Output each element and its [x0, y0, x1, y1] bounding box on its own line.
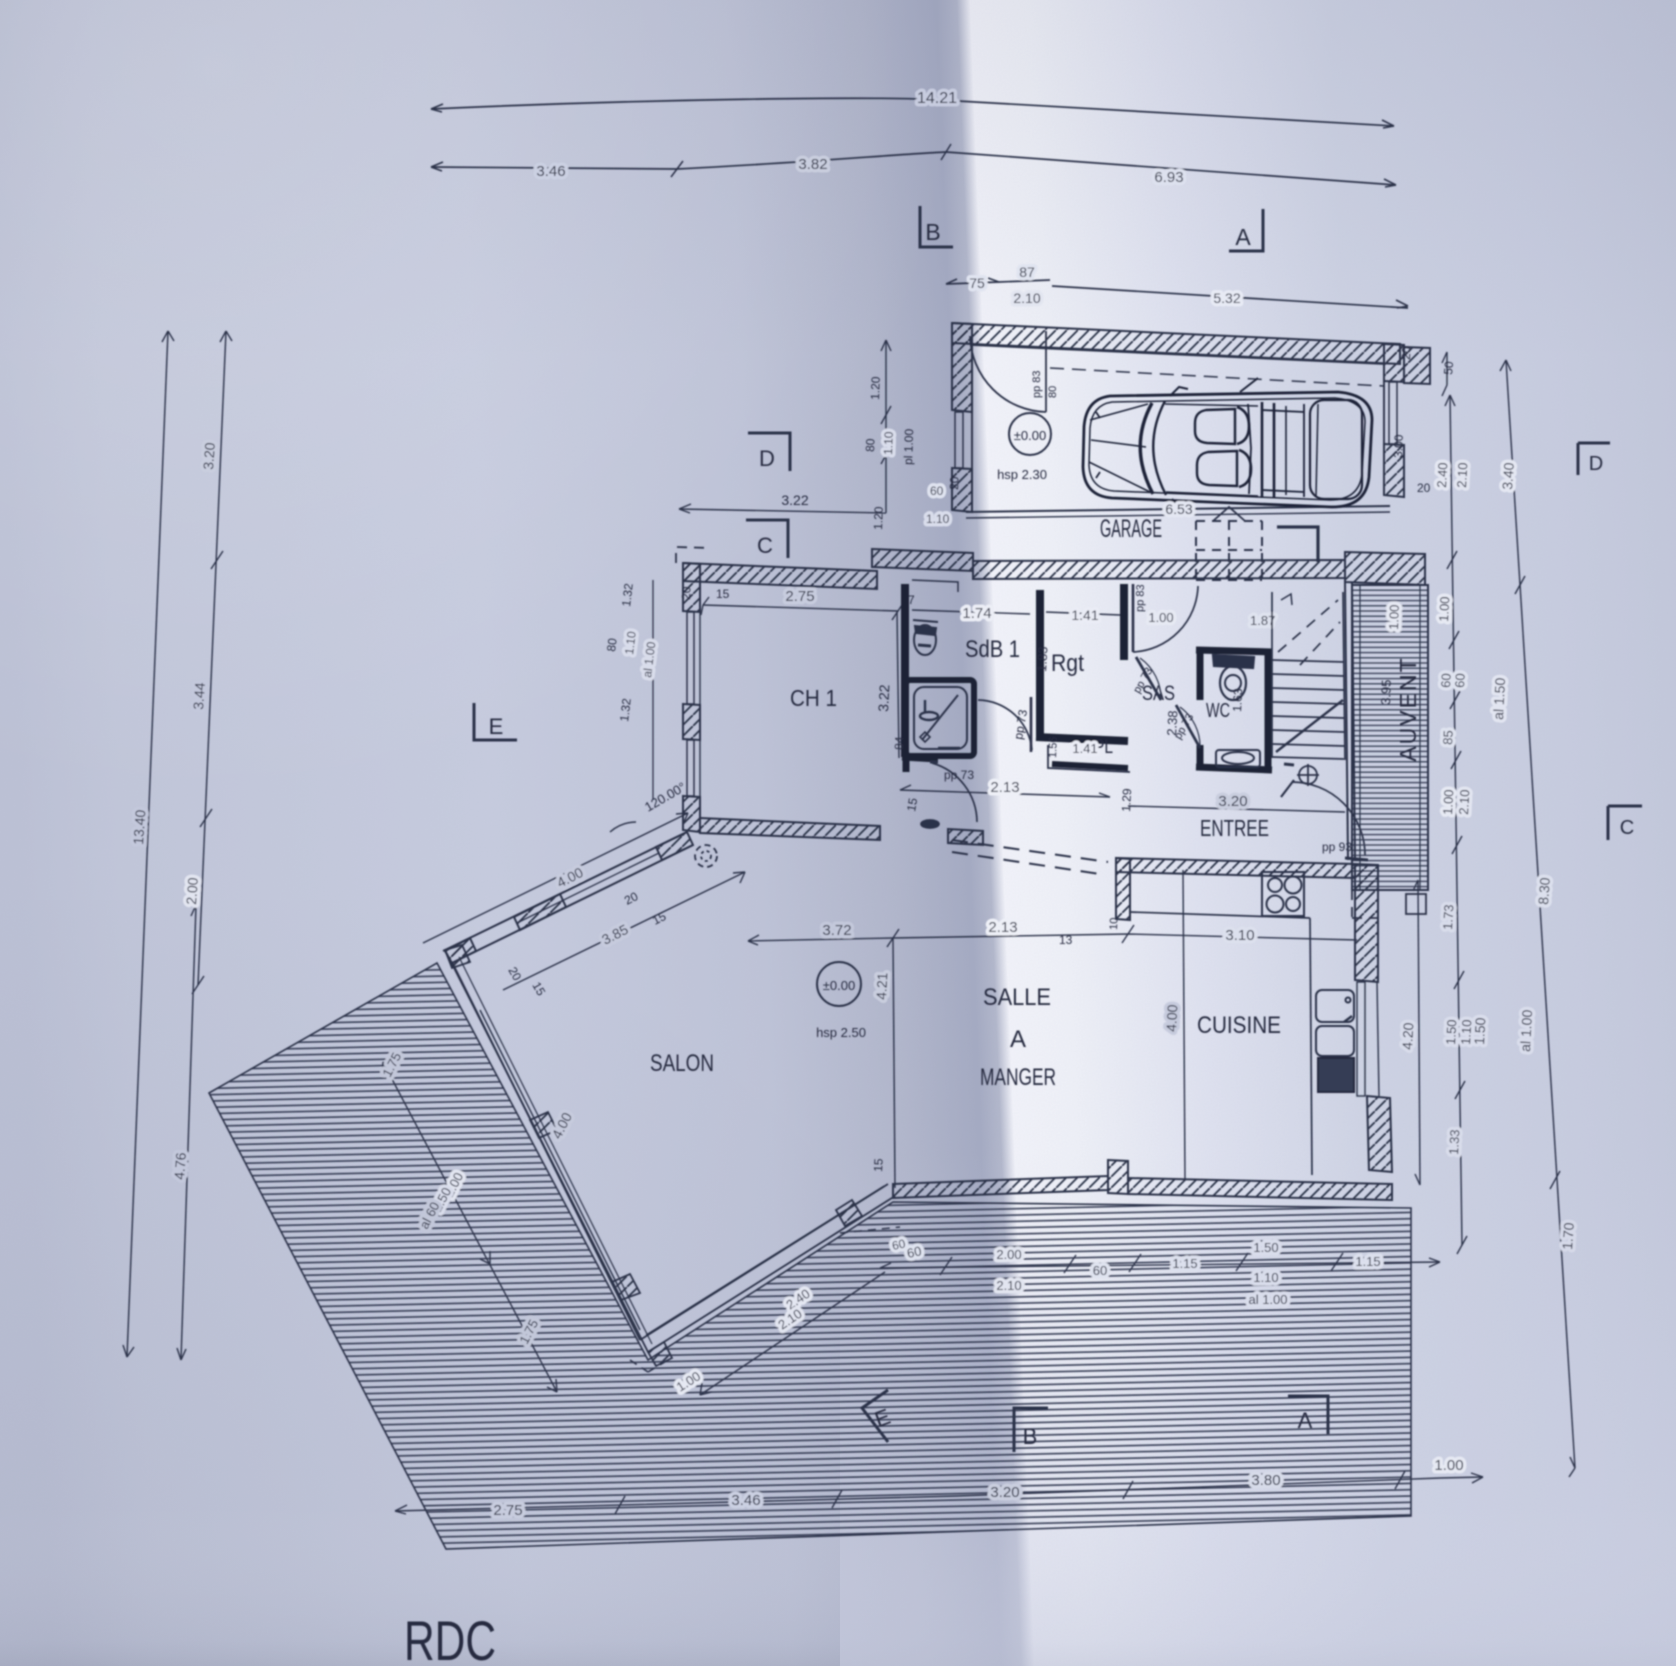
svg-text:SdB 1: SdB 1 [965, 636, 1020, 663]
svg-text:1.41: 1.41 [1072, 741, 1097, 756]
svg-text:6.93: 6.93 [1154, 169, 1183, 186]
svg-text:ENTREE: ENTREE [1200, 815, 1269, 841]
svg-text:13: 13 [1059, 933, 1073, 947]
svg-text:pp 83: pp 83 [1134, 584, 1147, 612]
svg-text:1.41: 1.41 [1071, 607, 1098, 623]
svg-text:A: A [1235, 224, 1251, 250]
svg-text:D: D [1589, 453, 1603, 475]
svg-text:3.46: 3.46 [731, 1492, 760, 1509]
svg-text:4.21: 4.21 [873, 972, 890, 1000]
svg-text:3.22: 3.22 [781, 492, 808, 508]
svg-text:1.32: 1.32 [617, 697, 634, 722]
svg-text:2.10: 2.10 [996, 1278, 1021, 1293]
svg-text:3.20: 3.20 [1218, 793, 1247, 810]
svg-text:20: 20 [679, 586, 693, 600]
svg-text:80: 80 [863, 438, 877, 452]
svg-text:1.73: 1.73 [1440, 904, 1456, 930]
svg-text:50: 50 [1441, 360, 1456, 375]
svg-text:1.00: 1.00 [1436, 596, 1452, 622]
svg-text:C: C [757, 533, 773, 558]
svg-text:3.10: 3.10 [1225, 927, 1254, 944]
svg-text:4.76: 4.76 [171, 1152, 189, 1181]
svg-text:75: 75 [969, 275, 985, 291]
svg-text:80: 80 [604, 637, 620, 652]
svg-text:pp 73: pp 73 [944, 768, 974, 782]
svg-text:B: B [925, 219, 940, 245]
svg-text:60: 60 [906, 1243, 923, 1261]
svg-text:C: C [1620, 817, 1634, 839]
svg-text:60: 60 [1093, 1263, 1107, 1278]
svg-text:3.95: 3.95 [1378, 679, 1394, 705]
svg-text:1.74: 1.74 [962, 605, 991, 622]
svg-text:RDC: RDC [404, 1609, 496, 1666]
svg-text:1.10: 1.10 [926, 512, 950, 526]
svg-text:al 1.00: al 1.00 [1248, 1292, 1287, 1307]
svg-text:±0.00: ±0.00 [1014, 428, 1046, 443]
svg-text:A: A [1298, 1408, 1313, 1433]
svg-text:1.15: 1.15 [1172, 1256, 1197, 1271]
svg-text:pp 83: pp 83 [1031, 370, 1043, 398]
svg-text:±0.00: ±0.00 [823, 978, 855, 993]
svg-text:5.32: 5.32 [1213, 290, 1240, 306]
svg-text:3.00: 3.00 [1391, 434, 1406, 458]
svg-text:2.13: 2.13 [990, 779, 1019, 796]
svg-text:1.70: 1.70 [1559, 1222, 1577, 1251]
svg-text:1.83: 1.83 [1034, 646, 1050, 672]
svg-text:hsp 2.30: hsp 2.30 [997, 467, 1047, 482]
svg-text:al 1.50: al 1.50 [1490, 677, 1508, 720]
svg-text:1.20: 1.20 [871, 506, 886, 530]
svg-text:3.40: 3.40 [1499, 462, 1517, 491]
svg-text:pl 1.00: pl 1.00 [901, 428, 916, 465]
svg-text:MANGER: MANGER [980, 1064, 1056, 1091]
svg-text:4.20: 4.20 [1399, 1022, 1416, 1050]
svg-text:60: 60 [930, 484, 944, 498]
svg-text:2.10: 2.10 [1013, 290, 1040, 306]
svg-text:1.00: 1.00 [1148, 610, 1173, 625]
svg-text:1.29: 1.29 [1119, 788, 1134, 812]
svg-text:1.00: 1.00 [1386, 604, 1402, 630]
svg-text:2.75: 2.75 [785, 588, 814, 605]
svg-text:1.32: 1.32 [619, 582, 636, 607]
svg-text:3.80: 3.80 [1251, 1472, 1280, 1489]
svg-text:2.13: 2.13 [988, 919, 1017, 936]
svg-text:60: 60 [1452, 673, 1468, 688]
svg-text:1.33: 1.33 [1446, 1129, 1462, 1155]
svg-text:2.00: 2.00 [996, 1247, 1021, 1262]
svg-text:8.30: 8.30 [1535, 877, 1553, 906]
svg-text:1.56: 1.56 [1047, 736, 1060, 758]
svg-text:1.00: 1.00 [1440, 789, 1456, 815]
svg-text:hsp 2.50: hsp 2.50 [816, 1025, 866, 1040]
svg-text:WC: WC [1206, 700, 1230, 722]
svg-text:1.10: 1.10 [1253, 1270, 1278, 1285]
svg-text:20: 20 [1417, 481, 1431, 495]
svg-text:D: D [759, 446, 775, 471]
svg-text:GARAGE: GARAGE [1100, 515, 1162, 543]
svg-text:2.40: 2.40 [1434, 462, 1450, 488]
svg-text:al 1.00: al 1.00 [1517, 1009, 1535, 1052]
svg-text:2.00: 2.00 [183, 877, 201, 906]
svg-text:15: 15 [716, 587, 730, 601]
svg-text:87: 87 [1019, 264, 1035, 280]
svg-text:1.20: 1.20 [868, 376, 883, 400]
svg-text:2.10: 2.10 [1454, 462, 1470, 488]
svg-text:3.20: 3.20 [990, 1484, 1019, 1501]
svg-text:3.82: 3.82 [798, 156, 827, 173]
svg-text:15: 15 [904, 797, 920, 813]
svg-text:20: 20 [947, 476, 961, 490]
svg-text:SALON: SALON [650, 1050, 714, 1077]
svg-text:7: 7 [908, 593, 915, 607]
svg-text:E: E [489, 714, 504, 739]
svg-text:3.20: 3.20 [200, 442, 218, 471]
svg-text:CUISINE: CUISINE [1197, 1012, 1281, 1039]
svg-text:85: 85 [1440, 730, 1456, 745]
svg-text:CH 1: CH 1 [790, 685, 837, 711]
svg-text:2.10: 2.10 [1456, 789, 1472, 815]
svg-text:20: 20 [1399, 346, 1413, 360]
svg-text:14.21: 14.21 [917, 90, 957, 107]
svg-text:1.10: 1.10 [622, 630, 639, 655]
svg-text:1.63: 1.63 [1230, 688, 1245, 712]
svg-text:2.75: 2.75 [493, 1502, 522, 1519]
svg-text:13.40: 13.40 [130, 809, 148, 845]
svg-text:1.10: 1.10 [881, 431, 896, 455]
svg-text:1.50: 1.50 [1253, 1240, 1278, 1255]
svg-text:84: 84 [892, 736, 906, 750]
svg-text:3.22: 3.22 [875, 684, 892, 712]
svg-text:1.50: 1.50 [1443, 1019, 1459, 1045]
svg-text:AUVENT: AUVENT [1395, 656, 1421, 761]
svg-text:A: A [1010, 1026, 1026, 1053]
svg-text:1.10: 1.10 [1458, 1019, 1474, 1045]
svg-text:1.15: 1.15 [1355, 1254, 1380, 1269]
svg-text:3.44: 3.44 [190, 682, 208, 711]
svg-text:80: 80 [1047, 386, 1059, 398]
svg-text:6.53: 6.53 [1165, 501, 1192, 517]
svg-text:SALLE: SALLE [983, 984, 1051, 1011]
svg-text:4.00: 4.00 [1163, 1004, 1180, 1032]
svg-text:3.72: 3.72 [822, 922, 851, 939]
svg-text:3.46: 3.46 [536, 163, 565, 180]
svg-text:15: 15 [871, 1158, 886, 1172]
svg-text:Rgt: Rgt [1051, 650, 1084, 677]
svg-text:B: B [1023, 1424, 1038, 1449]
svg-text:1.00: 1.00 [1434, 1457, 1463, 1474]
